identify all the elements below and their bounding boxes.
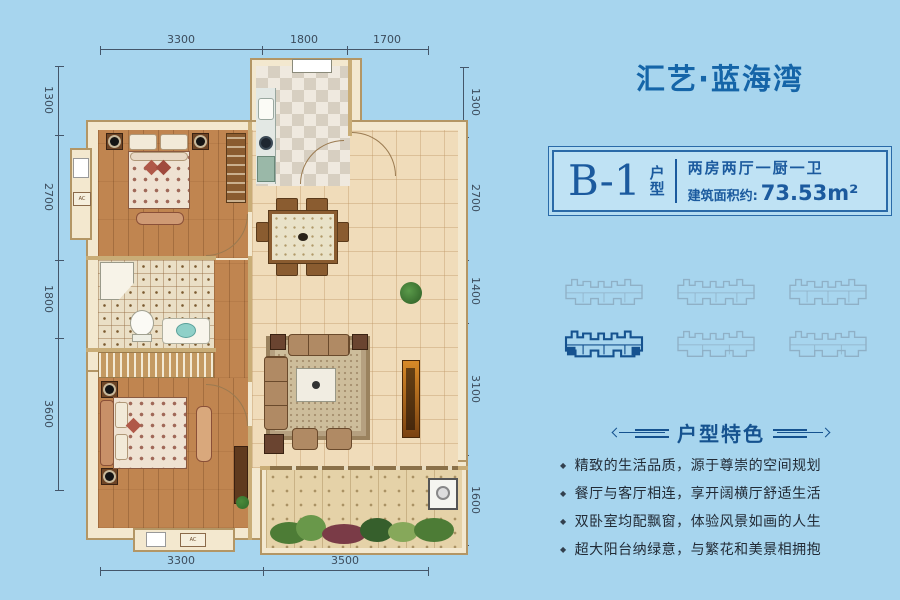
feature-item: 餐厅与客厅相连，享开阔横厅舒适生活	[560, 480, 896, 508]
dim-left-3: 1800	[42, 285, 55, 313]
balcony-plant	[296, 515, 326, 541]
building-icon	[782, 272, 874, 310]
features-heading: 户型特色	[677, 418, 765, 447]
ruler-left: 1300 2700 1800 3600	[58, 66, 59, 490]
dim-left-1: 1300	[42, 86, 55, 114]
sofa-long	[264, 356, 288, 430]
dim-right-3: 1400	[469, 277, 482, 305]
unit-type-label: 户型	[650, 165, 667, 197]
teapot	[298, 233, 308, 241]
building-icon	[670, 272, 762, 310]
sink	[176, 323, 196, 338]
balcony-plant	[414, 518, 454, 542]
feature-item: 超大阳台纳绿意，与繁花和美景相拥抱	[560, 536, 896, 564]
kitchen-sink	[258, 98, 274, 120]
feature-item: 精致的生活品质，源于尊崇的空间规划	[560, 452, 896, 480]
dim-right-4: 3100	[469, 375, 482, 403]
balcony-sliding-door	[270, 466, 458, 470]
bay-window-seat	[73, 158, 89, 178]
dim-left-4: 3600	[42, 400, 55, 428]
nightstand	[106, 133, 123, 150]
armchair	[326, 428, 352, 450]
area-value: 73.53m²	[761, 181, 859, 205]
stove	[259, 136, 273, 150]
dim-bottom-1: 3300	[167, 554, 195, 567]
project-title: 汇艺·蓝海湾	[540, 56, 900, 98]
feature-item: 双卧室均配飘窗，体验风景如画的人生	[560, 508, 896, 536]
wardrobe-master	[226, 133, 246, 203]
bed-pillow	[129, 134, 157, 150]
plant-entry	[400, 282, 422, 304]
wall-bath-closet	[86, 348, 216, 352]
plant-bedroom2	[236, 496, 249, 509]
building-icon	[558, 272, 650, 310]
flyer-page: AC AC	[0, 0, 900, 600]
unit-layout: 两房两厅一厨一卫	[688, 157, 859, 178]
dim-top-1: 3300	[167, 33, 195, 46]
dim-right-5: 1600	[469, 486, 482, 514]
bed2-headboard	[100, 400, 114, 466]
toilet	[130, 310, 154, 336]
sofa-three-seat	[288, 334, 350, 356]
washer-door	[436, 486, 450, 500]
bed-pillow	[115, 434, 128, 460]
wall-divider	[248, 256, 252, 382]
bay-window-seat	[146, 532, 166, 547]
bed-bolster	[130, 152, 188, 161]
features-list: 精致的生活品质，源于尊崇的空间规划 餐厅与客厅相连，享开阔横厅舒适生活 双卧室均…	[560, 452, 896, 564]
dining-chair	[306, 262, 328, 276]
kitchen-cabinet	[257, 156, 275, 182]
building-selector-grid	[556, 272, 876, 362]
closet-strip	[98, 352, 214, 378]
building-icon	[670, 324, 762, 362]
dim-top-2: 1800	[290, 33, 318, 46]
building-icon-selected	[558, 324, 650, 362]
unit-code: B-1	[568, 160, 641, 202]
tv-screen	[406, 368, 415, 430]
ruler-top: 3300 1800 1700	[100, 49, 428, 50]
wall-kitchen-right	[348, 60, 352, 136]
dim-right-2: 2700	[469, 184, 482, 212]
toilet-tank	[132, 334, 152, 342]
wall-divider	[248, 426, 252, 540]
unit-info-box: B-1 户型 两房两厅一厨一卫 建筑面积约: 73.53m²	[548, 146, 892, 216]
wall-divider	[248, 122, 252, 212]
side-table	[270, 334, 286, 350]
nightstand	[101, 381, 118, 398]
side-table	[352, 334, 368, 350]
bed-pillow	[160, 134, 188, 150]
dim-right-1: 1300	[469, 88, 482, 116]
corner-table	[264, 434, 284, 454]
nightstand	[101, 468, 118, 485]
area-label: 建筑面积约:	[688, 185, 758, 204]
ornament-right-icon	[773, 428, 829, 437]
dim-top-3: 1700	[373, 33, 401, 46]
ac-unit-bedroom2: AC	[180, 533, 206, 547]
ac-unit-master: AC	[73, 192, 91, 206]
ornament-left-icon	[613, 428, 669, 437]
divider	[675, 159, 677, 203]
ruler-bottom: 3300 3500	[100, 570, 428, 571]
wall-bed1-bath	[86, 256, 216, 260]
nightstand	[192, 133, 209, 150]
armchair	[292, 428, 318, 450]
corridor	[214, 260, 248, 378]
bed-bench	[136, 212, 184, 225]
dim-left-2: 2700	[42, 183, 55, 211]
features-heading-row: 户型特色	[556, 418, 886, 447]
kitchen-window	[292, 59, 332, 73]
dim-bottom-2: 3500	[331, 554, 359, 567]
dining-chair	[276, 262, 298, 276]
building-icon	[782, 324, 874, 362]
vase	[312, 381, 320, 389]
